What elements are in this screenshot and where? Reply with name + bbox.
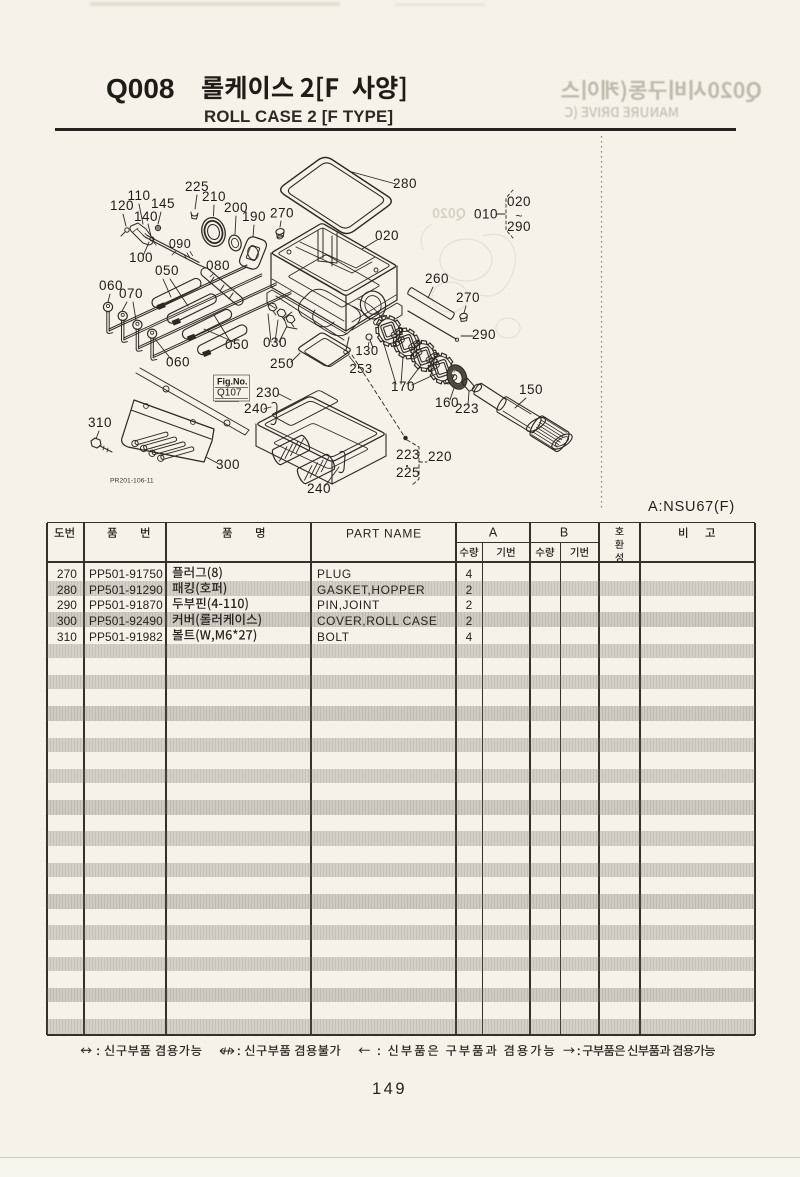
- svg-text:260: 260: [425, 271, 449, 286]
- svg-text:220: 220: [428, 449, 452, 464]
- svg-text:250: 250: [270, 356, 294, 371]
- svg-text:190: 190: [242, 209, 266, 224]
- svg-text:280: 280: [393, 176, 417, 191]
- svg-text:170: 170: [391, 379, 415, 394]
- svg-text:050: 050: [155, 263, 179, 278]
- svg-text:223: 223: [396, 447, 420, 462]
- svg-text:270: 270: [270, 206, 294, 221]
- svg-text:140: 140: [134, 209, 158, 224]
- svg-text:223: 223: [455, 401, 479, 416]
- svg-text:270: 270: [456, 290, 480, 305]
- svg-text:020: 020: [507, 194, 531, 209]
- svg-text:130: 130: [355, 343, 378, 358]
- svg-text:225: 225: [396, 465, 420, 480]
- svg-text:310: 310: [88, 415, 112, 430]
- svg-text:A: A: [489, 526, 498, 540]
- svg-text:300: 300: [216, 457, 240, 472]
- svg-text:B: B: [560, 526, 568, 540]
- svg-text:030: 030: [263, 335, 287, 350]
- svg-text:100: 100: [129, 250, 153, 265]
- svg-text:070: 070: [119, 286, 143, 301]
- svg-text:150: 150: [519, 382, 543, 397]
- svg-text:PR201-106-11: PR201-106-11: [110, 478, 154, 485]
- svg-text:Q107: Q107: [217, 388, 242, 399]
- svg-text:290: 290: [507, 219, 531, 234]
- svg-text:PART NAME: PART NAME: [346, 527, 422, 541]
- svg-text:010: 010: [474, 207, 498, 222]
- svg-text:210: 210: [202, 189, 226, 204]
- svg-text:Fig.No.: Fig.No.: [217, 377, 248, 387]
- svg-text:090: 090: [169, 237, 191, 251]
- svg-text:290: 290: [472, 327, 496, 342]
- svg-text:080: 080: [206, 258, 230, 273]
- svg-text:020: 020: [375, 228, 399, 243]
- svg-text:230: 230: [256, 385, 280, 400]
- svg-text:120: 120: [110, 198, 134, 213]
